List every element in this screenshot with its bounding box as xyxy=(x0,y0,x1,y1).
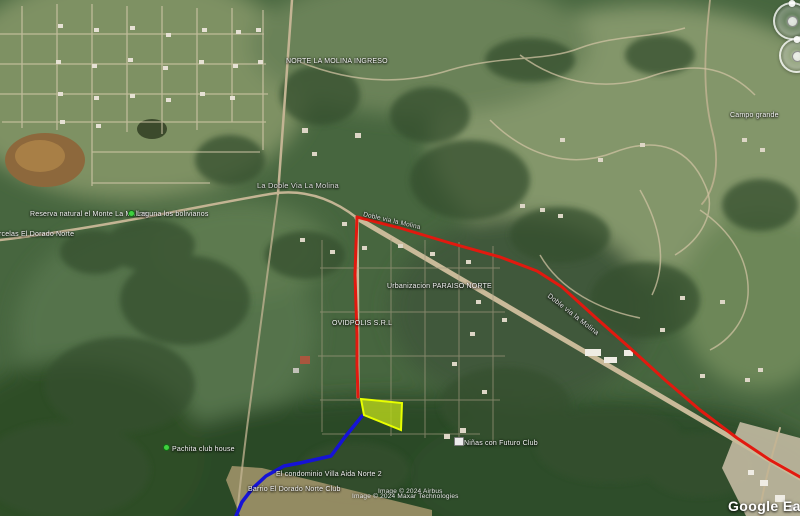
label-ninas-con-futuro-club-marker[interactable] xyxy=(454,437,464,446)
label-campo-grande: Campo grande xyxy=(730,112,779,119)
label-condominio-villa-aida-norte-2: El condominio Villa Aida Norte 2 xyxy=(276,471,382,478)
map-labels-layer: NORTE LA MOLINA INGRESOCampo grandeLa Do… xyxy=(0,0,800,516)
label-norte-la-molina-ingreso: NORTE LA MOLINA INGRESO xyxy=(286,58,388,65)
imagery-attribution-line2: Image © 2024 Maxar Technologies xyxy=(352,493,459,500)
label-laguna-los-bolivianos: Laguna los bolivianos xyxy=(137,211,209,218)
label-pachita-club-house-marker[interactable] xyxy=(163,444,170,451)
move-joystick-center xyxy=(792,51,800,62)
label-urbanizacion-paraiso-norte: Urbanizacion PARAISO NORTE xyxy=(387,283,492,290)
label-doble-via-diagonal: Doble via la Molina xyxy=(546,293,600,337)
label-parcelas-el-dorado-norte: Parcelas El Dorado Norte xyxy=(0,231,74,238)
google-earth-watermark: Google Earth xyxy=(728,498,800,514)
label-doble-via-corner: Doble via la Molina xyxy=(362,212,421,232)
label-pachita-club-house: Pachita club house xyxy=(172,446,235,453)
label-doble-via-la-molina-road: La Doble Via La Molina xyxy=(257,182,339,190)
label-laguna-los-bolivianos-marker[interactable] xyxy=(128,210,135,217)
look-joystick-center xyxy=(787,16,798,27)
label-ninas-con-futuro-club: Niñas con Futuro Club xyxy=(464,440,538,447)
label-ovidpolis-srl: OVIDPOLIS S.R.L xyxy=(332,320,392,327)
label-barrio-el-dorado-norte-club: Barrio El Dorado Norte Club xyxy=(248,486,341,493)
google-earth-map-viewport[interactable]: NORTE LA MOLINA INGRESOCampo grandeLa Do… xyxy=(0,0,800,516)
